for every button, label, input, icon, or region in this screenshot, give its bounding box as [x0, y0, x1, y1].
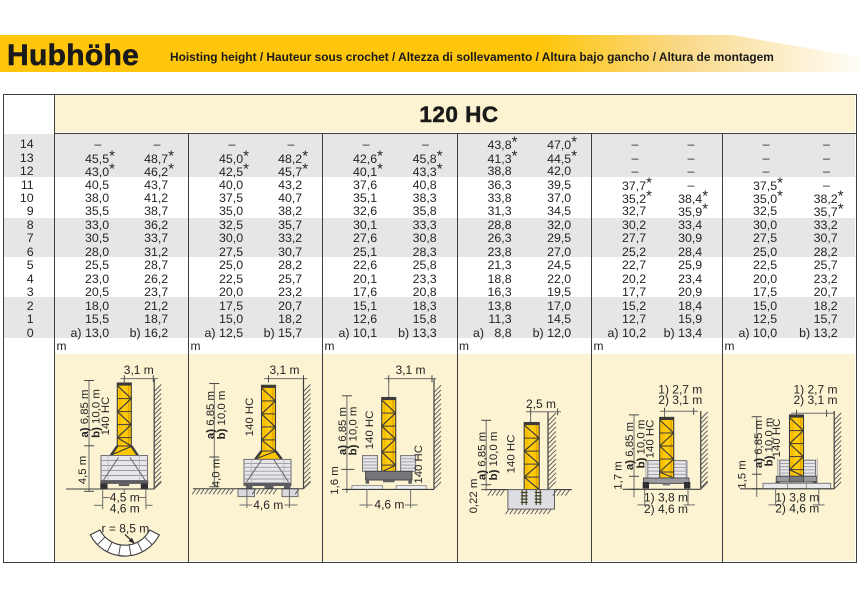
svg-text:4,6 m: 4,6 m — [110, 501, 140, 515]
svg-text:140 HC: 140 HC — [364, 411, 376, 450]
svg-text:2) 4,6 m: 2) 4,6 m — [775, 502, 819, 516]
svg-text:140 HC: 140 HC — [244, 398, 256, 437]
svg-text:140 HC: 140 HC — [505, 435, 517, 474]
svg-text:140 HC: 140 HC — [100, 397, 112, 436]
svg-text:1,7 m: 1,7 m — [613, 461, 625, 490]
svg-text:4,5 m: 4,5 m — [77, 456, 89, 485]
svg-text:140 HC: 140 HC — [771, 419, 783, 458]
svg-text:140 HC: 140 HC — [645, 420, 657, 459]
svg-text:r = 8,5 m: r = 8,5 m — [102, 522, 150, 536]
svg-text:3,1 m: 3,1 m — [395, 363, 425, 377]
svg-text:2) 3,1 m: 2) 3,1 m — [793, 393, 837, 407]
svg-text:2) 3,1 m: 2) 3,1 m — [658, 393, 702, 407]
svg-text:2) 4,6 m: 2) 4,6 m — [644, 502, 688, 516]
svg-text:4,0 m: 4,0 m — [211, 459, 223, 488]
svg-text:3,1 m: 3,1 m — [124, 363, 154, 377]
svg-text:0,22 m: 0,22 m — [468, 479, 480, 514]
svg-text:b) 10,0 m: b) 10,0 m — [348, 407, 360, 456]
svg-text:140 HC: 140 HC — [413, 445, 425, 484]
svg-text:1,5 m: 1,5 m — [736, 460, 748, 489]
svg-text:4,6 m: 4,6 m — [253, 498, 283, 512]
svg-text:3,1 m: 3,1 m — [269, 363, 299, 377]
svg-text:b) 10,0 m: b) 10,0 m — [488, 432, 500, 481]
svg-text:a) 6,85 m: a) 6,85 m — [79, 389, 91, 437]
svg-text:b) 10,0 m: b) 10,0 m — [216, 391, 228, 440]
svg-text:a) 6,85 m: a) 6,85 m — [624, 422, 636, 470]
svg-text:4,6 m: 4,6 m — [374, 498, 404, 512]
svg-text:a) 6,85 m: a) 6,85 m — [205, 391, 217, 439]
svg-text:1,6 m: 1,6 m — [329, 466, 341, 495]
